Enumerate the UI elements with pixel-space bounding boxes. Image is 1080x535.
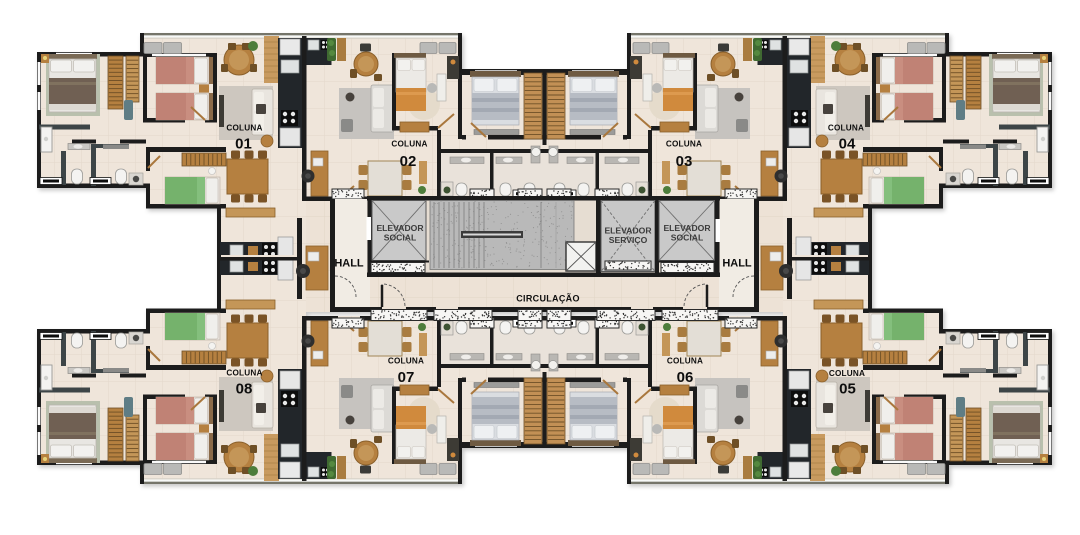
svg-text:SERVIÇO: SERVIÇO bbox=[609, 235, 648, 245]
svg-text:05: 05 bbox=[839, 381, 856, 398]
svg-text:COLUNA: COLUNA bbox=[666, 140, 702, 149]
svg-text:COLUNA: COLUNA bbox=[667, 357, 703, 366]
svg-text:ELEVADOR: ELEVADOR bbox=[376, 223, 424, 233]
svg-text:02: 02 bbox=[400, 153, 417, 170]
svg-text:COLUNA: COLUNA bbox=[226, 124, 262, 133]
svg-text:ELEVADOR: ELEVADOR bbox=[604, 226, 652, 236]
svg-text:HALL: HALL bbox=[722, 258, 752, 270]
svg-text:COLUNA: COLUNA bbox=[828, 124, 864, 133]
svg-text:01: 01 bbox=[235, 136, 252, 153]
svg-text:COLUNA: COLUNA bbox=[388, 357, 424, 366]
svg-text:08: 08 bbox=[236, 380, 253, 397]
svg-text:COLUNA: COLUNA bbox=[829, 369, 865, 378]
svg-text:07: 07 bbox=[398, 369, 415, 386]
svg-text:SOCIAL: SOCIAL bbox=[671, 233, 703, 243]
svg-text:HALL: HALL bbox=[334, 258, 364, 270]
svg-text:COLUNA: COLUNA bbox=[391, 140, 427, 149]
svg-text:SOCIAL: SOCIAL bbox=[384, 233, 416, 243]
svg-text:06: 06 bbox=[677, 369, 694, 386]
svg-text:CIRCULAÇÃO: CIRCULAÇÃO bbox=[516, 294, 580, 304]
svg-text:04: 04 bbox=[839, 136, 856, 153]
svg-text:03: 03 bbox=[676, 153, 693, 170]
svg-text:COLUNA: COLUNA bbox=[226, 369, 262, 378]
svg-text:ELEVADOR: ELEVADOR bbox=[663, 223, 711, 233]
